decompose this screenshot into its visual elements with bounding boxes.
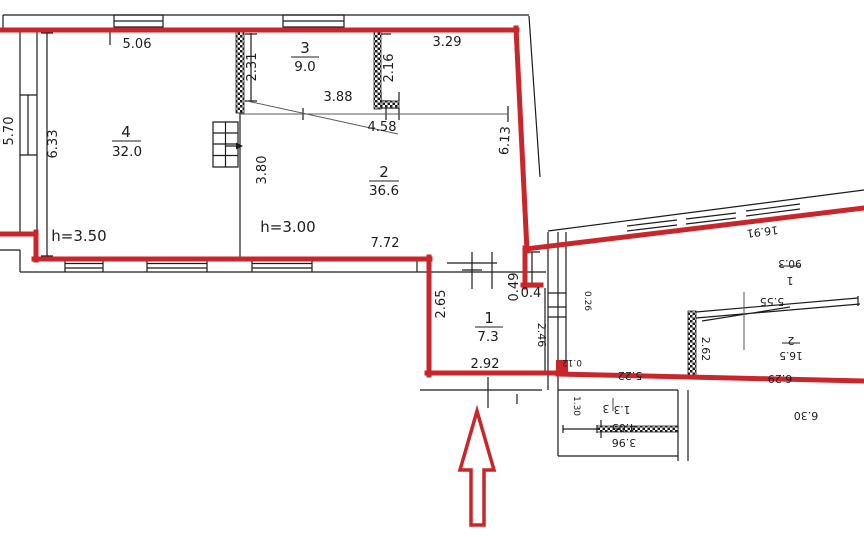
floor-plan-drawing: 5.06 3.29 5.70 6.33 2.31 2.16 3.88 4.58 … bbox=[0, 0, 864, 537]
adj-dim-hall-bottom: 6.30 bbox=[794, 409, 819, 422]
entrance-arrow-icon bbox=[460, 411, 494, 525]
left-wall bbox=[20, 30, 37, 233]
dim-mid-upper: 3.88 bbox=[324, 90, 353, 105]
dim-entry-b: 0.4 bbox=[521, 286, 542, 301]
room1-number: 1 bbox=[484, 309, 494, 327]
dim-partition-right: 2.16 bbox=[382, 54, 397, 83]
room2-number: 2 bbox=[379, 163, 389, 181]
adj-dim-small-left: 1.30 bbox=[571, 396, 581, 416]
dim-top: 5.06 bbox=[123, 37, 152, 52]
main-plan-labels: 5.06 3.29 5.70 6.33 2.31 2.16 3.88 4.58 … bbox=[2, 35, 541, 372]
hatched-wall-adjacent-lower bbox=[597, 426, 678, 432]
dim-left-inner: 6.33 bbox=[46, 130, 61, 159]
height-label-left: h=3.50 bbox=[51, 227, 106, 245]
adj-hall-number: 1 bbox=[787, 274, 794, 287]
adj-dim-notch: 0.12 bbox=[562, 357, 582, 367]
hatched-wall-adjacent-inner bbox=[688, 311, 696, 377]
dim-top-right: 3.29 bbox=[433, 35, 462, 50]
adj-dim-wall-window: 0.26 bbox=[582, 291, 592, 311]
room3-area: 9.0 bbox=[294, 59, 315, 75]
room1-area: 7.3 bbox=[477, 329, 498, 345]
floor-plan-canvas: 5.06 3.29 5.70 6.33 2.31 2.16 3.88 4.58 … bbox=[0, 0, 864, 537]
dim-partition-left: 2.31 bbox=[245, 53, 260, 82]
black-linework bbox=[0, 15, 864, 461]
adj-dim-small-bottom: 3.96 bbox=[612, 436, 637, 449]
dim-mid-lower: 4.58 bbox=[368, 120, 397, 135]
room3-number: 3 bbox=[300, 39, 310, 57]
adj-dim-small-top: 4.05 bbox=[612, 421, 637, 434]
adj-dim-inner-bottom: 6.29 bbox=[768, 372, 793, 385]
porch-below-room1 bbox=[420, 377, 542, 408]
adj-hall-area: 90.3 bbox=[778, 257, 801, 269]
adj-dim-left-wall: 2.46 bbox=[535, 323, 548, 348]
dim-right-wall: 6.13 bbox=[497, 126, 514, 156]
hatched-wall-room4-room3 bbox=[236, 31, 244, 113]
adj-dim-hall-width: 5.55 bbox=[760, 295, 785, 308]
adj-inner-number: 2 bbox=[788, 334, 795, 347]
room4-area: 32.0 bbox=[112, 144, 142, 160]
hatched-niche-wall bbox=[381, 101, 399, 108]
dim-room2-width: 7.72 bbox=[371, 236, 400, 251]
adj-dim-slant-top: 16.91 bbox=[746, 223, 779, 240]
adj-small-number: 3 bbox=[603, 402, 610, 415]
adjacent-plan-labels: 16.91 90.3 1 5.55 2 16.5 2.62 6.29 5.22 … bbox=[535, 223, 818, 449]
dim-room1-width: 2.92 bbox=[471, 357, 500, 372]
dim-room1-depth: 2.65 bbox=[434, 290, 449, 319]
red-unit-outline bbox=[0, 28, 864, 381]
dim-stair-wall: 3.80 bbox=[255, 156, 270, 185]
adj-dim-bottom-left: 5.22 bbox=[618, 369, 643, 382]
adj-dim-inner-left: 2.62 bbox=[699, 337, 712, 362]
height-label-right: h=3.00 bbox=[260, 218, 315, 236]
hatched-wall-room3-right bbox=[374, 31, 381, 109]
room4-number: 4 bbox=[121, 123, 131, 141]
adj-small-area: 1.3 bbox=[614, 403, 631, 415]
dim-left-outer: 5.70 bbox=[2, 117, 17, 146]
stairs-symbol bbox=[213, 122, 239, 167]
room2-area: 36.6 bbox=[369, 183, 399, 199]
adj-inner-area: 16.5 bbox=[779, 349, 802, 361]
